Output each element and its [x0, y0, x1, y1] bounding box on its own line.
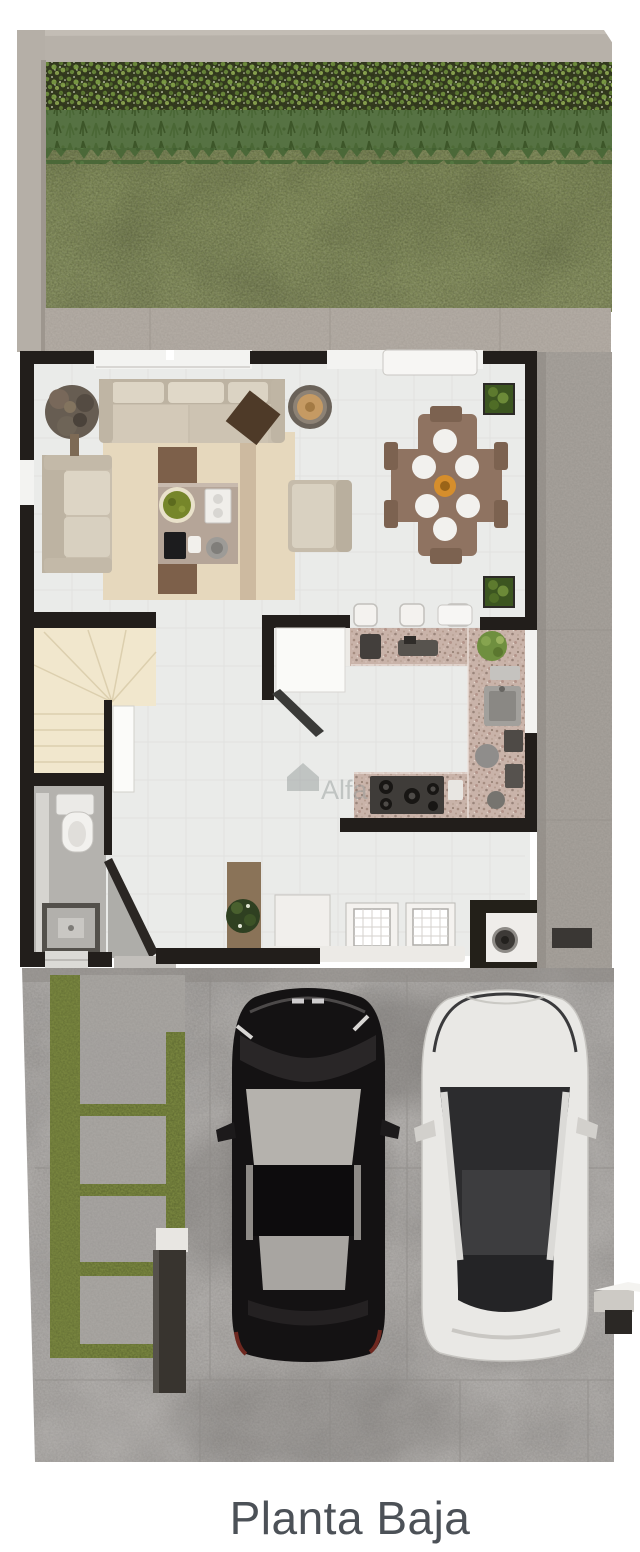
svg-text:Alfa: Alfa: [321, 775, 369, 805]
